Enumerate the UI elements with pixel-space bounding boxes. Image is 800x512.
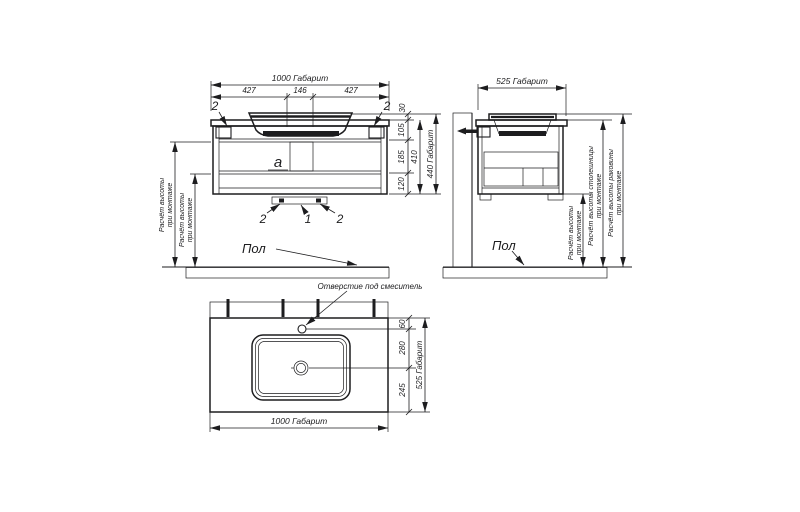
- sink-plan: [252, 335, 416, 400]
- siphon-hatch-area: a: [268, 142, 313, 171]
- bottom-mount-strip: 2 1 2: [259, 197, 344, 226]
- dim-427-right: 427: [344, 86, 358, 95]
- callout-bracket-left: 2: [211, 99, 219, 113]
- side-bracket: [457, 127, 490, 137]
- dim-1000-gabarit-front: 1000 Габарит: [272, 73, 328, 83]
- dim-427-left: 427: [242, 86, 256, 95]
- front-floor: Пол: [162, 241, 389, 278]
- front-view: a 2 1 2 2 2: [159, 73, 441, 278]
- vanity-installation-drawing: a 2 1 2 2 2: [0, 0, 800, 512]
- dim-280: 280: [398, 341, 407, 356]
- bracket-left: [216, 127, 231, 138]
- side-wall: [453, 113, 472, 267]
- side-countertop-height-line1: Расчёт высоты столешницы: [588, 145, 595, 246]
- side-mount-height-line2: при монтаже: [576, 211, 583, 256]
- front-height-dimensions: 30 105 185 120 410 440 Габарит: [352, 103, 441, 197]
- dim-60: 60: [398, 319, 407, 328]
- dim-146: 146: [293, 86, 307, 95]
- dim-30: 30: [398, 103, 407, 112]
- side-floor: Пол: [443, 238, 632, 278]
- side-mount-height-line1: Расчёт высоты: [568, 205, 575, 260]
- mixer-hole-label: Отверстие под смеситель: [318, 282, 423, 291]
- dim-185: 185: [397, 150, 406, 164]
- callout-bottom-right: 2: [336, 212, 344, 226]
- mount-height-1-line1: Расчёт высоты: [159, 177, 166, 232]
- callout-bottom-left: 2: [259, 212, 267, 226]
- sink-side: [489, 114, 556, 136]
- side-depth-dimension: 525 Габарит: [478, 76, 566, 116]
- dim-440-gabarit: 440 Габарит: [426, 129, 435, 178]
- bracket-right: [369, 127, 384, 138]
- dim-1000-gabarit-plan: 1000 Габарит: [271, 416, 327, 426]
- dim-245: 245: [398, 383, 407, 398]
- mount-height-2-line2: при монтаже: [187, 198, 194, 243]
- side-sink-height-line2: при монтаже: [616, 171, 623, 216]
- dim-105: 105: [397, 123, 406, 137]
- mount-height-2-line1: Расчёт высоты: [179, 192, 186, 247]
- front-mount-dimensions: Расчёт высоты при монтаже Расчёт высоты …: [159, 142, 211, 267]
- dim-525-gabarit-plan: 525 Габарит: [415, 340, 424, 389]
- dim-410: 410: [410, 150, 419, 164]
- floor-label-front: Пол: [242, 241, 266, 256]
- callout-bracket-right: 2: [383, 99, 391, 113]
- plan-width-dimension: 1000 Габарит: [210, 412, 388, 432]
- plan-view: Отверстие под смеситель 60 280 245: [210, 282, 430, 432]
- section-label: a: [274, 154, 282, 171]
- mount-height-1-line2: при монтаже: [167, 183, 174, 228]
- side-countertop-height-line2: при монтаже: [596, 174, 603, 219]
- plan-wall: [210, 299, 388, 318]
- side-mount-dimensions: Расчёт высоты при монтаже Расчёт высоты …: [556, 114, 632, 267]
- callout-bottom-center: 1: [305, 212, 312, 226]
- sink-front: [249, 113, 352, 136]
- front-width-dimensions: 1000 Габарит 427 146 427: [211, 73, 389, 127]
- technical-drawing-page: a 2 1 2 2 2: [0, 0, 800, 512]
- dim-120: 120: [397, 177, 406, 191]
- side-view: Пол: [443, 76, 632, 278]
- floor-label-side: Пол: [492, 238, 516, 253]
- side-sink-height-line1: Расчёт высоты раковины: [608, 148, 615, 237]
- dim-525-gabarit-side: 525 Габарит: [496, 76, 548, 86]
